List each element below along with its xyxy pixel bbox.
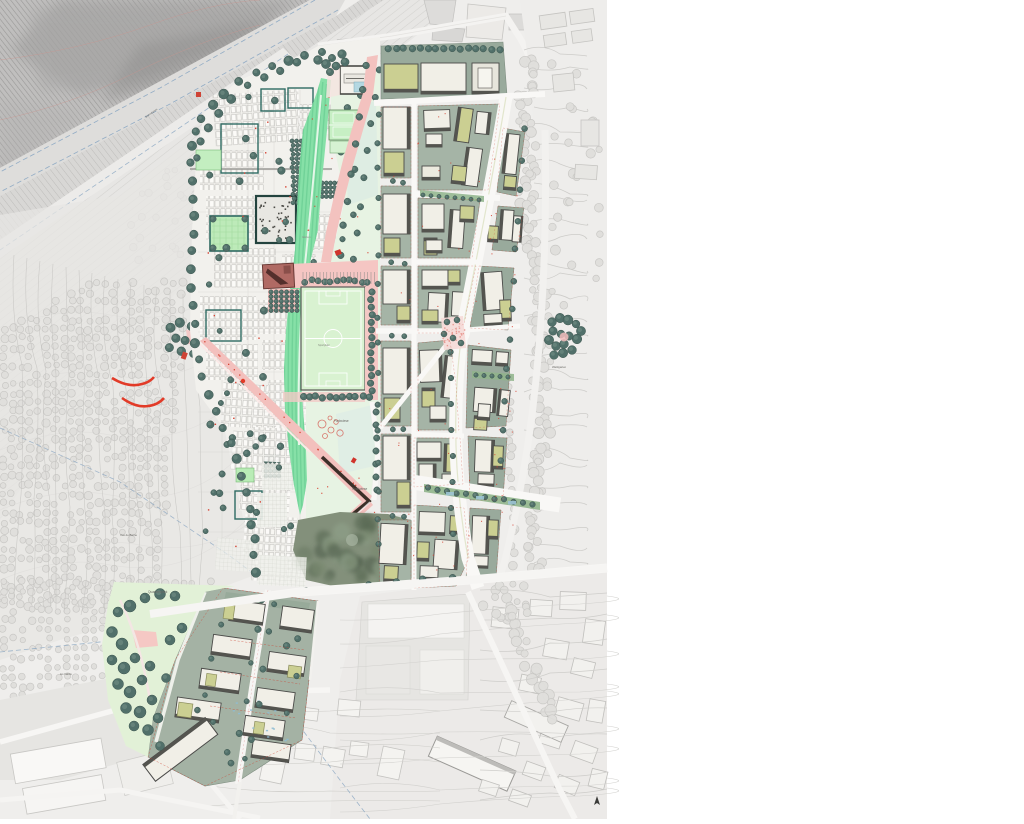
svg-text:Vue de Barne: Vue de Barne	[120, 533, 137, 537]
svg-text:Gärten: Gärten	[302, 235, 311, 239]
svg-text:Sportplatz: Sportplatz	[318, 343, 330, 347]
svg-text:Parkwiese: Parkwiese	[334, 419, 349, 423]
svg-text:les habits: les habits	[60, 672, 72, 676]
svg-text:Quartierspark: Quartierspark	[148, 590, 168, 594]
svg-text:Waldgarten: Waldgarten	[552, 365, 567, 369]
svg-text:Spielwiese: Spielwiese	[352, 487, 367, 491]
